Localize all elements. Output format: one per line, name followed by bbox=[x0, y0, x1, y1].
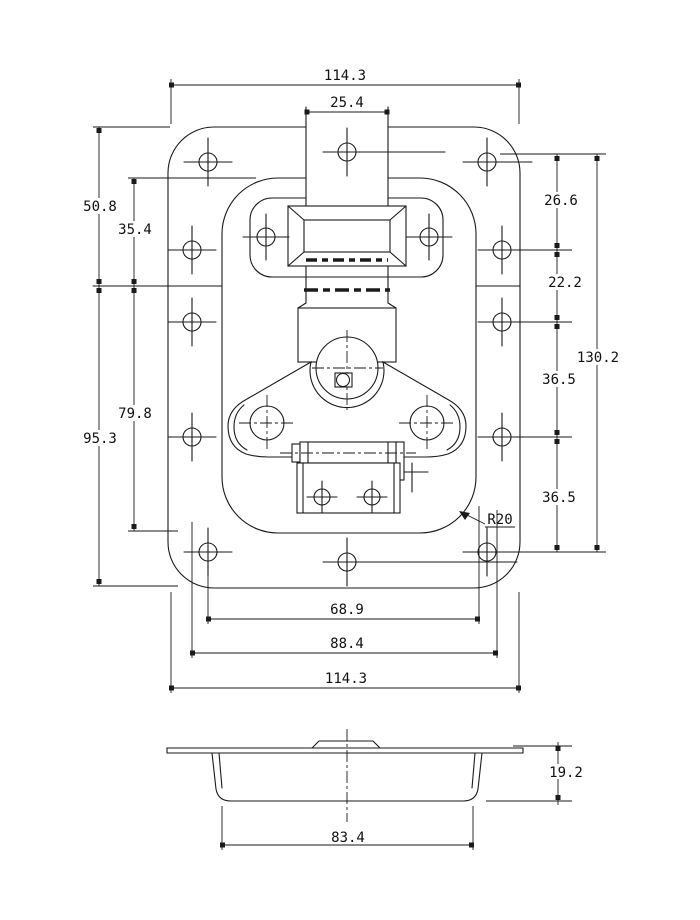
dim-text: 79.8 bbox=[118, 406, 152, 422]
dim-text: 114.3 bbox=[325, 671, 367, 687]
screw-hole bbox=[168, 226, 216, 274]
screw-hole bbox=[463, 138, 532, 186]
dim-text: 95.3 bbox=[83, 431, 117, 447]
dim-corner-radius: R20 bbox=[459, 511, 515, 528]
dim-strap-width: 25.4 bbox=[305, 95, 390, 115]
roller bbox=[300, 442, 396, 463]
screw-hole bbox=[168, 298, 216, 346]
dim-text: 19.2 bbox=[549, 765, 583, 781]
dim-text: 36.5 bbox=[542, 490, 576, 506]
dim-text: 26.6 bbox=[544, 193, 578, 209]
technical-drawing-page: 114.3 25.4 50.8 bbox=[0, 0, 700, 920]
dim-text: 83.4 bbox=[331, 830, 365, 846]
latch-drawing-canvas: 114.3 25.4 50.8 bbox=[0, 0, 700, 920]
dim-text: 130.2 bbox=[577, 350, 619, 366]
spring-box bbox=[297, 463, 400, 513]
screw-hole bbox=[323, 538, 517, 586]
dim-text: 22.2 bbox=[548, 275, 582, 291]
screw-hole bbox=[184, 138, 232, 186]
dim-right-chain: 26.6 22.2 36.5 36.5 130.2 bbox=[497, 154, 623, 552]
dim-text: 114.3 bbox=[324, 68, 366, 84]
side-flange bbox=[167, 748, 523, 753]
screw-hole bbox=[168, 413, 216, 461]
dim-text: 36.5 bbox=[542, 372, 576, 388]
dim-text: 68.9 bbox=[330, 602, 364, 618]
side-strap-bump bbox=[312, 741, 380, 748]
dim-text: 88.4 bbox=[330, 636, 364, 652]
strap-bevel bbox=[288, 206, 406, 266]
dim-bottom-span-mid: 88.4 bbox=[190, 510, 498, 658]
dim-text: 35.4 bbox=[118, 222, 152, 238]
side-view: 19.2 83.4 bbox=[167, 729, 586, 850]
dim-text: R20 bbox=[487, 512, 512, 528]
dim-recess-width: 83.4 bbox=[220, 806, 474, 850]
dim-text: 50.8 bbox=[83, 199, 117, 215]
dim-text: 25.4 bbox=[330, 95, 364, 111]
dim-recess-depth: 19.2 bbox=[486, 742, 586, 805]
